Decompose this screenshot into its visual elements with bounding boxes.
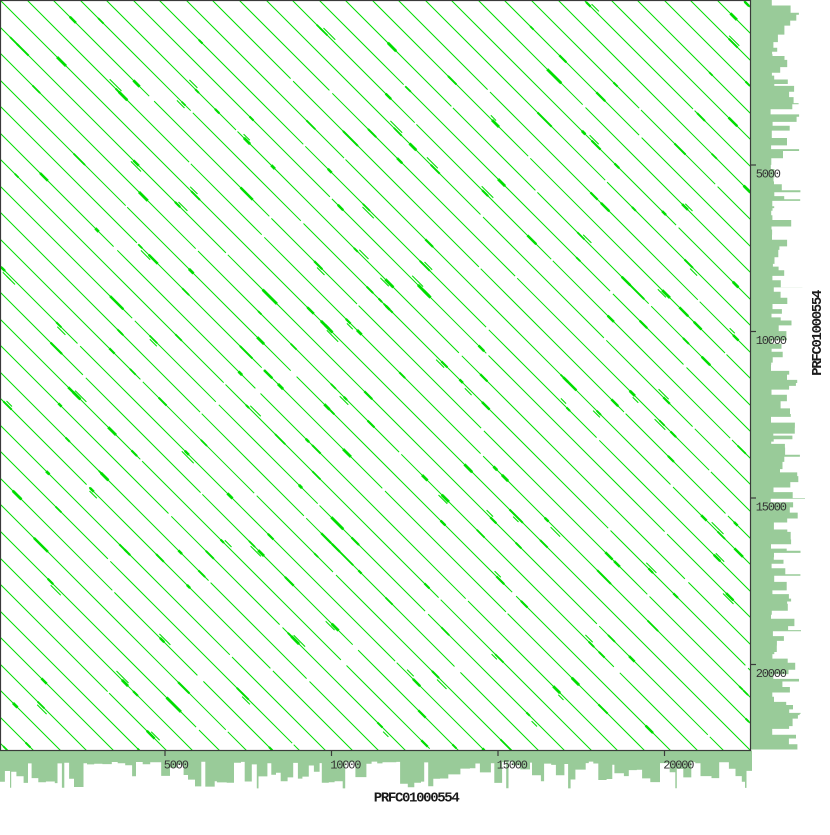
svg-text:15000: 15000	[497, 759, 528, 773]
svg-text:20000: 20000	[756, 667, 787, 681]
svg-text:10000: 10000	[330, 759, 361, 773]
svg-text:10000: 10000	[756, 334, 787, 348]
svg-text:15000: 15000	[756, 500, 787, 514]
svg-text:5000: 5000	[164, 759, 189, 773]
svg-text:5000: 5000	[756, 167, 781, 181]
svg-text:20000: 20000	[663, 759, 694, 773]
svg-text:PRFC01000554: PRFC01000554	[374, 791, 460, 807]
svg-text:PRFC01000554: PRFC01000554	[810, 290, 826, 376]
